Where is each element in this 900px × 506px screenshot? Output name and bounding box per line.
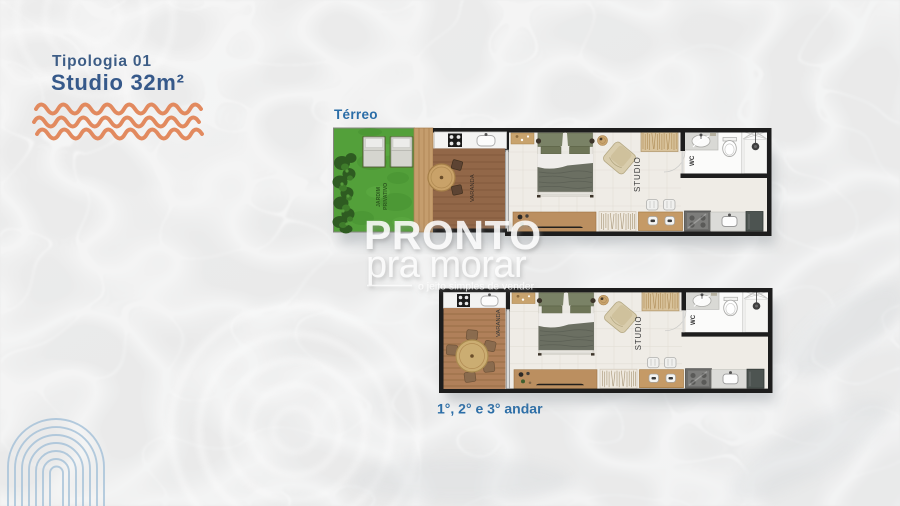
svg-text:PRIVATIVO: PRIVATIVO [383, 183, 389, 210]
svg-text:STUDIO: STUDIO [633, 156, 642, 192]
svg-text:Térreo: Térreo [334, 107, 378, 122]
svg-text:WC: WC [689, 155, 696, 166]
svg-text:Studio 32m²: Studio 32m² [51, 70, 185, 95]
svg-text:Tipologia 01: Tipologia 01 [52, 53, 152, 70]
svg-text:VARANDA: VARANDA [496, 309, 502, 337]
svg-text:1°, 2° e 3° andar: 1°, 2° e 3° andar [437, 401, 543, 417]
svg-text:JARDIM: JARDIM [376, 187, 382, 207]
svg-text:o jeito simples de vender: o jeito simples de vender [418, 281, 535, 293]
svg-text:VARANDA: VARANDA [470, 174, 476, 202]
